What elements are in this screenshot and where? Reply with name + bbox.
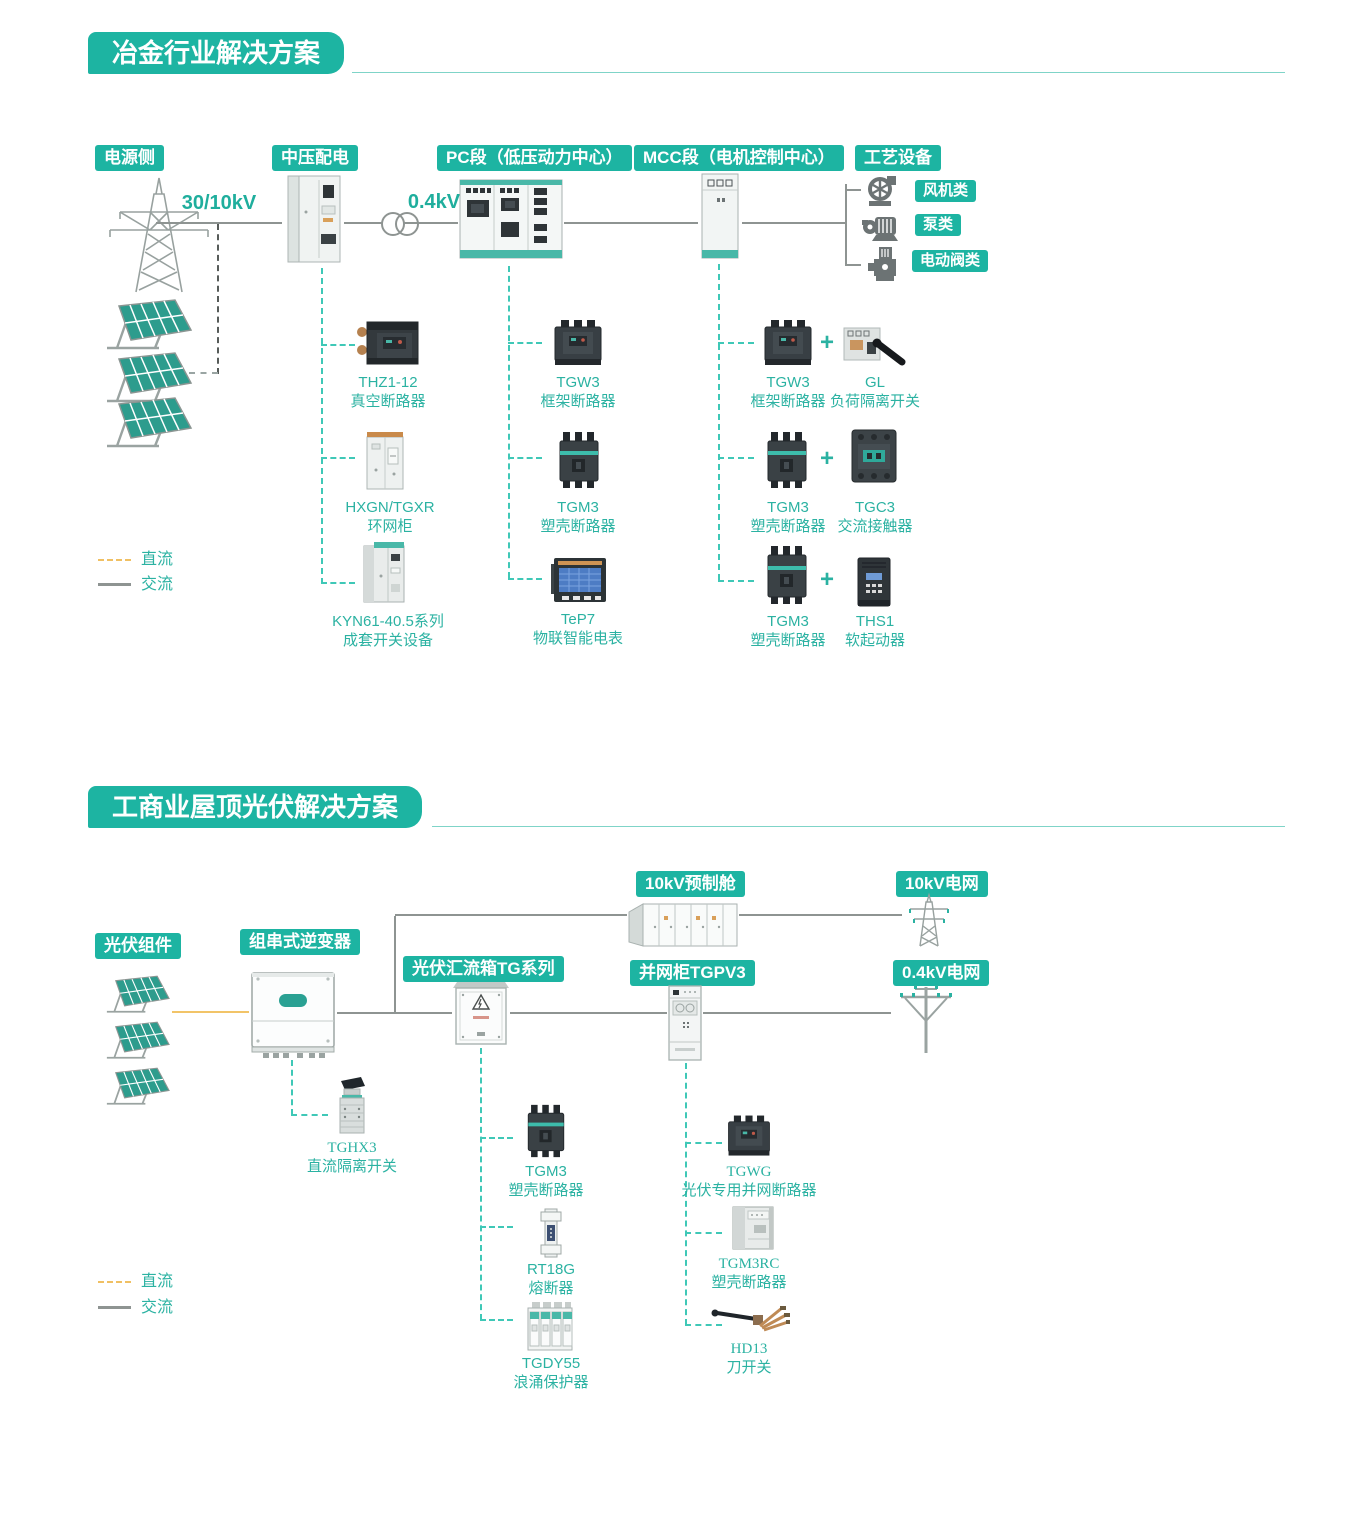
utility-pole-icon xyxy=(893,983,959,1055)
mv-products-trunk xyxy=(321,268,323,584)
equipment-type-pumps: 泵类 xyxy=(915,214,961,236)
plus-sign: + xyxy=(820,447,834,471)
dashed-pv-connector xyxy=(189,372,218,374)
gl-switch-image xyxy=(842,324,908,368)
line-combiner-to-cabinet xyxy=(510,1012,667,1014)
header-process-equipment: 工艺设备 xyxy=(855,145,941,171)
legend-dc-label: 直流 xyxy=(141,1272,173,1292)
pump-icon xyxy=(858,208,902,244)
pc-branch-1 xyxy=(508,342,542,344)
equipment-type-valves: 电动阀类 xyxy=(912,250,988,272)
string-inverter-image xyxy=(249,965,337,1061)
line-junction-vertical xyxy=(394,916,396,1013)
product-label: TGM3 塑壳断路器 xyxy=(486,1162,606,1200)
legend-ac-label: 交流 xyxy=(141,575,173,595)
grid-cabinet-image xyxy=(667,984,703,1062)
equipment-stub-1 xyxy=(845,189,861,191)
combiner-products-trunk xyxy=(480,1048,482,1320)
rt18g-fuse-image xyxy=(538,1206,564,1260)
product-label: HD13 刀开关 xyxy=(688,1340,810,1378)
mcc-branch-3 xyxy=(718,580,754,582)
line-pc-to-mcc xyxy=(564,222,698,224)
header-combiner-box: 光伏汇流箱TG系列 xyxy=(403,956,564,982)
solar-panel-icon xyxy=(95,296,195,352)
mv-cabinet-image xyxy=(282,172,344,266)
pc-branch-2 xyxy=(508,457,542,459)
legend-ac-label: 交流 xyxy=(141,1298,173,1318)
legend-dc-line xyxy=(98,559,131,561)
mcc-products-trunk xyxy=(718,264,720,580)
mcc-branch-1 xyxy=(718,342,754,344)
product-label: THZ1-12 真空断路器 xyxy=(328,373,448,411)
tgwg-breaker-image xyxy=(725,1110,773,1162)
section2-title: 工商业屋顶光伏解决方案 xyxy=(88,786,422,828)
tgdy55-spd-image xyxy=(526,1300,574,1354)
product-label: HXGN/TGXR 环网柜 xyxy=(325,498,455,536)
mv-branch-2 xyxy=(321,457,355,459)
header-grid-cabinet: 并网柜TGPV3 xyxy=(630,960,755,986)
mv-branch-3 xyxy=(321,582,355,584)
header-power-side: 电源侧 xyxy=(95,145,164,171)
pc-switchgear-image xyxy=(458,174,564,264)
line-mcc-to-equipment xyxy=(742,222,846,224)
combiner-branch-1 xyxy=(480,1137,513,1139)
legend-ac-line xyxy=(98,1306,131,1309)
legend-dc-label: 直流 xyxy=(141,550,173,570)
hd13-knife-switch-image xyxy=(710,1302,790,1336)
tgm3-breaker-image xyxy=(764,544,810,606)
combiner-box-image xyxy=(452,980,510,1048)
product-label: TGW3 框架断路器 xyxy=(518,373,638,411)
tgc3-contactor-image xyxy=(848,428,900,486)
header-mcc-section: MCC段（电机控制中心） xyxy=(634,145,844,171)
product-label: TeP7 物联智能电表 xyxy=(508,610,648,648)
product-label: THS1 软起动器 xyxy=(815,612,935,650)
voltage-label-incoming: 30/10kV xyxy=(173,192,265,215)
ths1-softstarter-image xyxy=(854,556,894,608)
mcc-cabinet-image xyxy=(698,172,742,262)
transmission-tower-icon xyxy=(90,172,228,294)
mv-branch-1 xyxy=(321,344,355,346)
line-inverter-to-combiner xyxy=(337,1012,452,1014)
legend-dc-line xyxy=(98,1281,131,1283)
section2-title-line xyxy=(432,826,1285,827)
pc-branch-3 xyxy=(508,578,542,580)
product-label: TGDY55 浪涌保护器 xyxy=(486,1354,616,1392)
solar-panel-icon xyxy=(98,1018,172,1062)
line-cabinet-to-grid04 xyxy=(703,1012,891,1014)
equipment-bracket xyxy=(845,184,847,266)
equipment-type-fans: 风机类 xyxy=(915,180,976,202)
plus-sign: + xyxy=(820,568,834,592)
product-label: GL 负荷隔离开关 xyxy=(815,373,935,411)
section1-title: 冶金行业解决方案 xyxy=(88,32,344,74)
pc-products-trunk xyxy=(508,266,510,578)
combiner-branch-2 xyxy=(480,1226,513,1228)
header-pv-modules: 光伏组件 xyxy=(95,933,181,959)
product-label: TGWG 光伏专用并网断路器 xyxy=(668,1163,830,1201)
line-tower-to-mv xyxy=(156,222,282,224)
line-cabin-to-grid xyxy=(739,914,902,916)
product-label: TGC3 交流接触器 xyxy=(815,498,935,536)
tgm3-breaker-image xyxy=(764,430,810,490)
hxgn-cabinet-image xyxy=(364,430,406,492)
solar-panel-icon xyxy=(98,972,172,1016)
solar-panel-icon xyxy=(95,394,195,450)
equipment-stub-3 xyxy=(845,264,861,266)
product-label: TGHX3 直流隔离开关 xyxy=(292,1139,412,1177)
fan-icon xyxy=(862,172,900,210)
product-label: KYN61-40.5系列 成套开关设备 xyxy=(318,612,458,650)
tep7-meter-image xyxy=(550,556,608,604)
dc-line-pv-to-inverter xyxy=(172,1011,249,1013)
section1-title-line xyxy=(352,72,1285,73)
legend-ac-line xyxy=(98,583,131,586)
tgw3-breaker-image xyxy=(761,318,815,368)
inverter-product-branch xyxy=(291,1114,328,1116)
line-junction-to-cabin xyxy=(395,914,627,916)
combiner-branch-3 xyxy=(480,1319,513,1321)
kyn61-cabinet-image xyxy=(360,540,408,606)
tghx3-switch-image xyxy=(330,1076,372,1136)
grid-10kv-tower-icon xyxy=(902,892,956,948)
tgm3rc-breaker-image xyxy=(731,1203,775,1253)
header-string-inverter: 组串式逆变器 xyxy=(240,929,360,955)
product-label: TGM3 塑壳断路器 xyxy=(518,498,638,536)
product-label: RT18G 熔断器 xyxy=(491,1260,611,1298)
grid-branch-1 xyxy=(685,1142,722,1144)
mcc-branch-2 xyxy=(718,457,754,459)
tgw3-breaker-image xyxy=(551,318,605,368)
grid-branch-2 xyxy=(685,1232,722,1234)
tgm3-breaker-image xyxy=(556,430,602,490)
valve-icon xyxy=(866,245,902,285)
thz1-breaker-image xyxy=(354,320,422,366)
solar-panel-icon xyxy=(98,1064,172,1108)
header-prefab-cabin: 10kV预制舱 xyxy=(636,871,745,897)
prefab-cabin-image xyxy=(627,899,739,949)
tgm3-breaker-image xyxy=(522,1103,570,1159)
product-label: TGM3RC 塑壳断路器 xyxy=(688,1255,810,1293)
inverter-product-drop xyxy=(291,1060,293,1115)
solution-diagram-page: 冶金行业解决方案 电源侧 中压配电 PC段（低压动力中心） MCC段（电机控制中… xyxy=(0,0,1350,1528)
dashed-drop-to-pv xyxy=(217,224,219,374)
header-pc-section: PC段（低压动力中心） xyxy=(437,145,632,171)
plus-sign: + xyxy=(820,331,834,355)
voltage-label-lv: 0.4kV xyxy=(402,191,466,214)
header-mv-distribution: 中压配电 xyxy=(272,145,358,171)
